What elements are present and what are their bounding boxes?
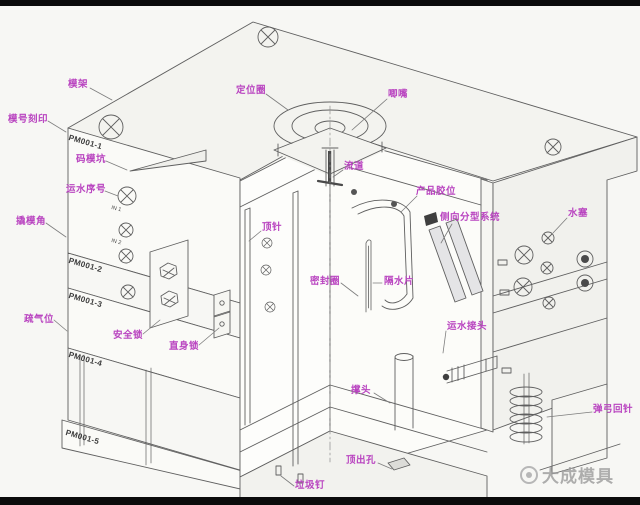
label-leader-line	[48, 121, 66, 132]
watermark-text: 大成模具	[542, 462, 614, 487]
part-label: 侧向分型系统	[440, 213, 500, 223]
part-label: 产品胶位	[416, 187, 456, 197]
cut-face-left	[240, 135, 330, 477]
cut-face-right	[330, 135, 487, 476]
sprue-slot	[328, 151, 331, 182]
part-label: 定位圈	[236, 86, 266, 96]
part-label: 水塞	[568, 209, 588, 219]
part-label: 模号刻印	[8, 115, 48, 125]
label-leader-line	[90, 88, 112, 100]
part-label: 运水序号	[66, 185, 106, 195]
part-label: 直身锁	[169, 342, 199, 352]
part-label: 安全锁	[113, 331, 143, 341]
straight-lock-clips	[214, 290, 230, 338]
part-label: 疏气位	[24, 315, 54, 325]
foot-block	[552, 384, 607, 474]
ledge-screw	[351, 189, 357, 195]
watermark: 大成模具	[520, 462, 614, 487]
label-leader-line	[54, 320, 67, 331]
safety-lock-block	[150, 240, 188, 328]
part-label: 撑头	[351, 386, 371, 396]
mold-line-drawing	[0, 0, 640, 505]
part-label: 流道	[344, 162, 364, 172]
top-letterbox-bar	[0, 0, 640, 6]
mold-structure-diagram: 模架模号刻印码模坑运水序号撬模角疏气位安全锁直身锁定位圈唧嘴流道产品胶位侧向分型…	[0, 0, 640, 505]
part-label: 弹弓回针	[593, 405, 633, 415]
part-label: 顶针	[262, 223, 282, 233]
watermark-logo-icon	[520, 466, 538, 484]
part-label: 码模坑	[76, 155, 106, 165]
part-label: 撬模角	[16, 217, 46, 227]
part-label: 运水接头	[447, 322, 487, 332]
part-label: 唧嘴	[388, 90, 408, 100]
part-label: 隔水片	[384, 277, 414, 287]
part-label: 密封圈	[310, 277, 340, 287]
part-label: 垃圾钉	[295, 481, 325, 491]
bottom-letterbox-bar	[0, 497, 640, 505]
part-label: 模架	[68, 80, 88, 90]
part-label: 顶出孔	[346, 456, 376, 466]
label-leader-line	[46, 223, 66, 237]
